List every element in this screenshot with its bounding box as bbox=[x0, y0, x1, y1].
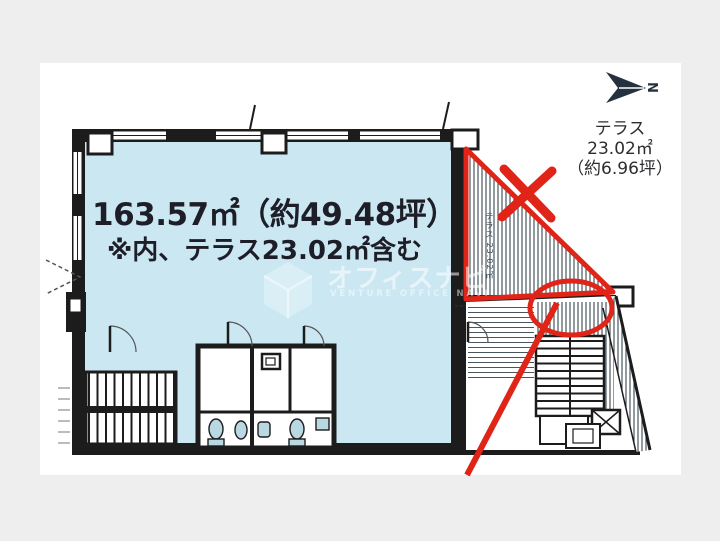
terrace-label-area: 23.02㎡ bbox=[552, 139, 688, 159]
terrace-label-tsubo: （約6.96坪） bbox=[552, 159, 688, 179]
terrace-label-name: テラス bbox=[552, 119, 688, 139]
watermark-subtext: VENTURE OFFICE NAVI bbox=[330, 289, 491, 299]
north-label: N bbox=[644, 82, 659, 93]
floor-plan-page: 163.57㎡（約49.48坪） ※内、テラス23.02㎡含む テラス 23.0… bbox=[0, 0, 720, 541]
terrace-label: テラス 23.02㎡ （約6.96坪） bbox=[552, 119, 688, 179]
area-label: 163.57㎡（約49.48坪） bbox=[92, 189, 457, 234]
